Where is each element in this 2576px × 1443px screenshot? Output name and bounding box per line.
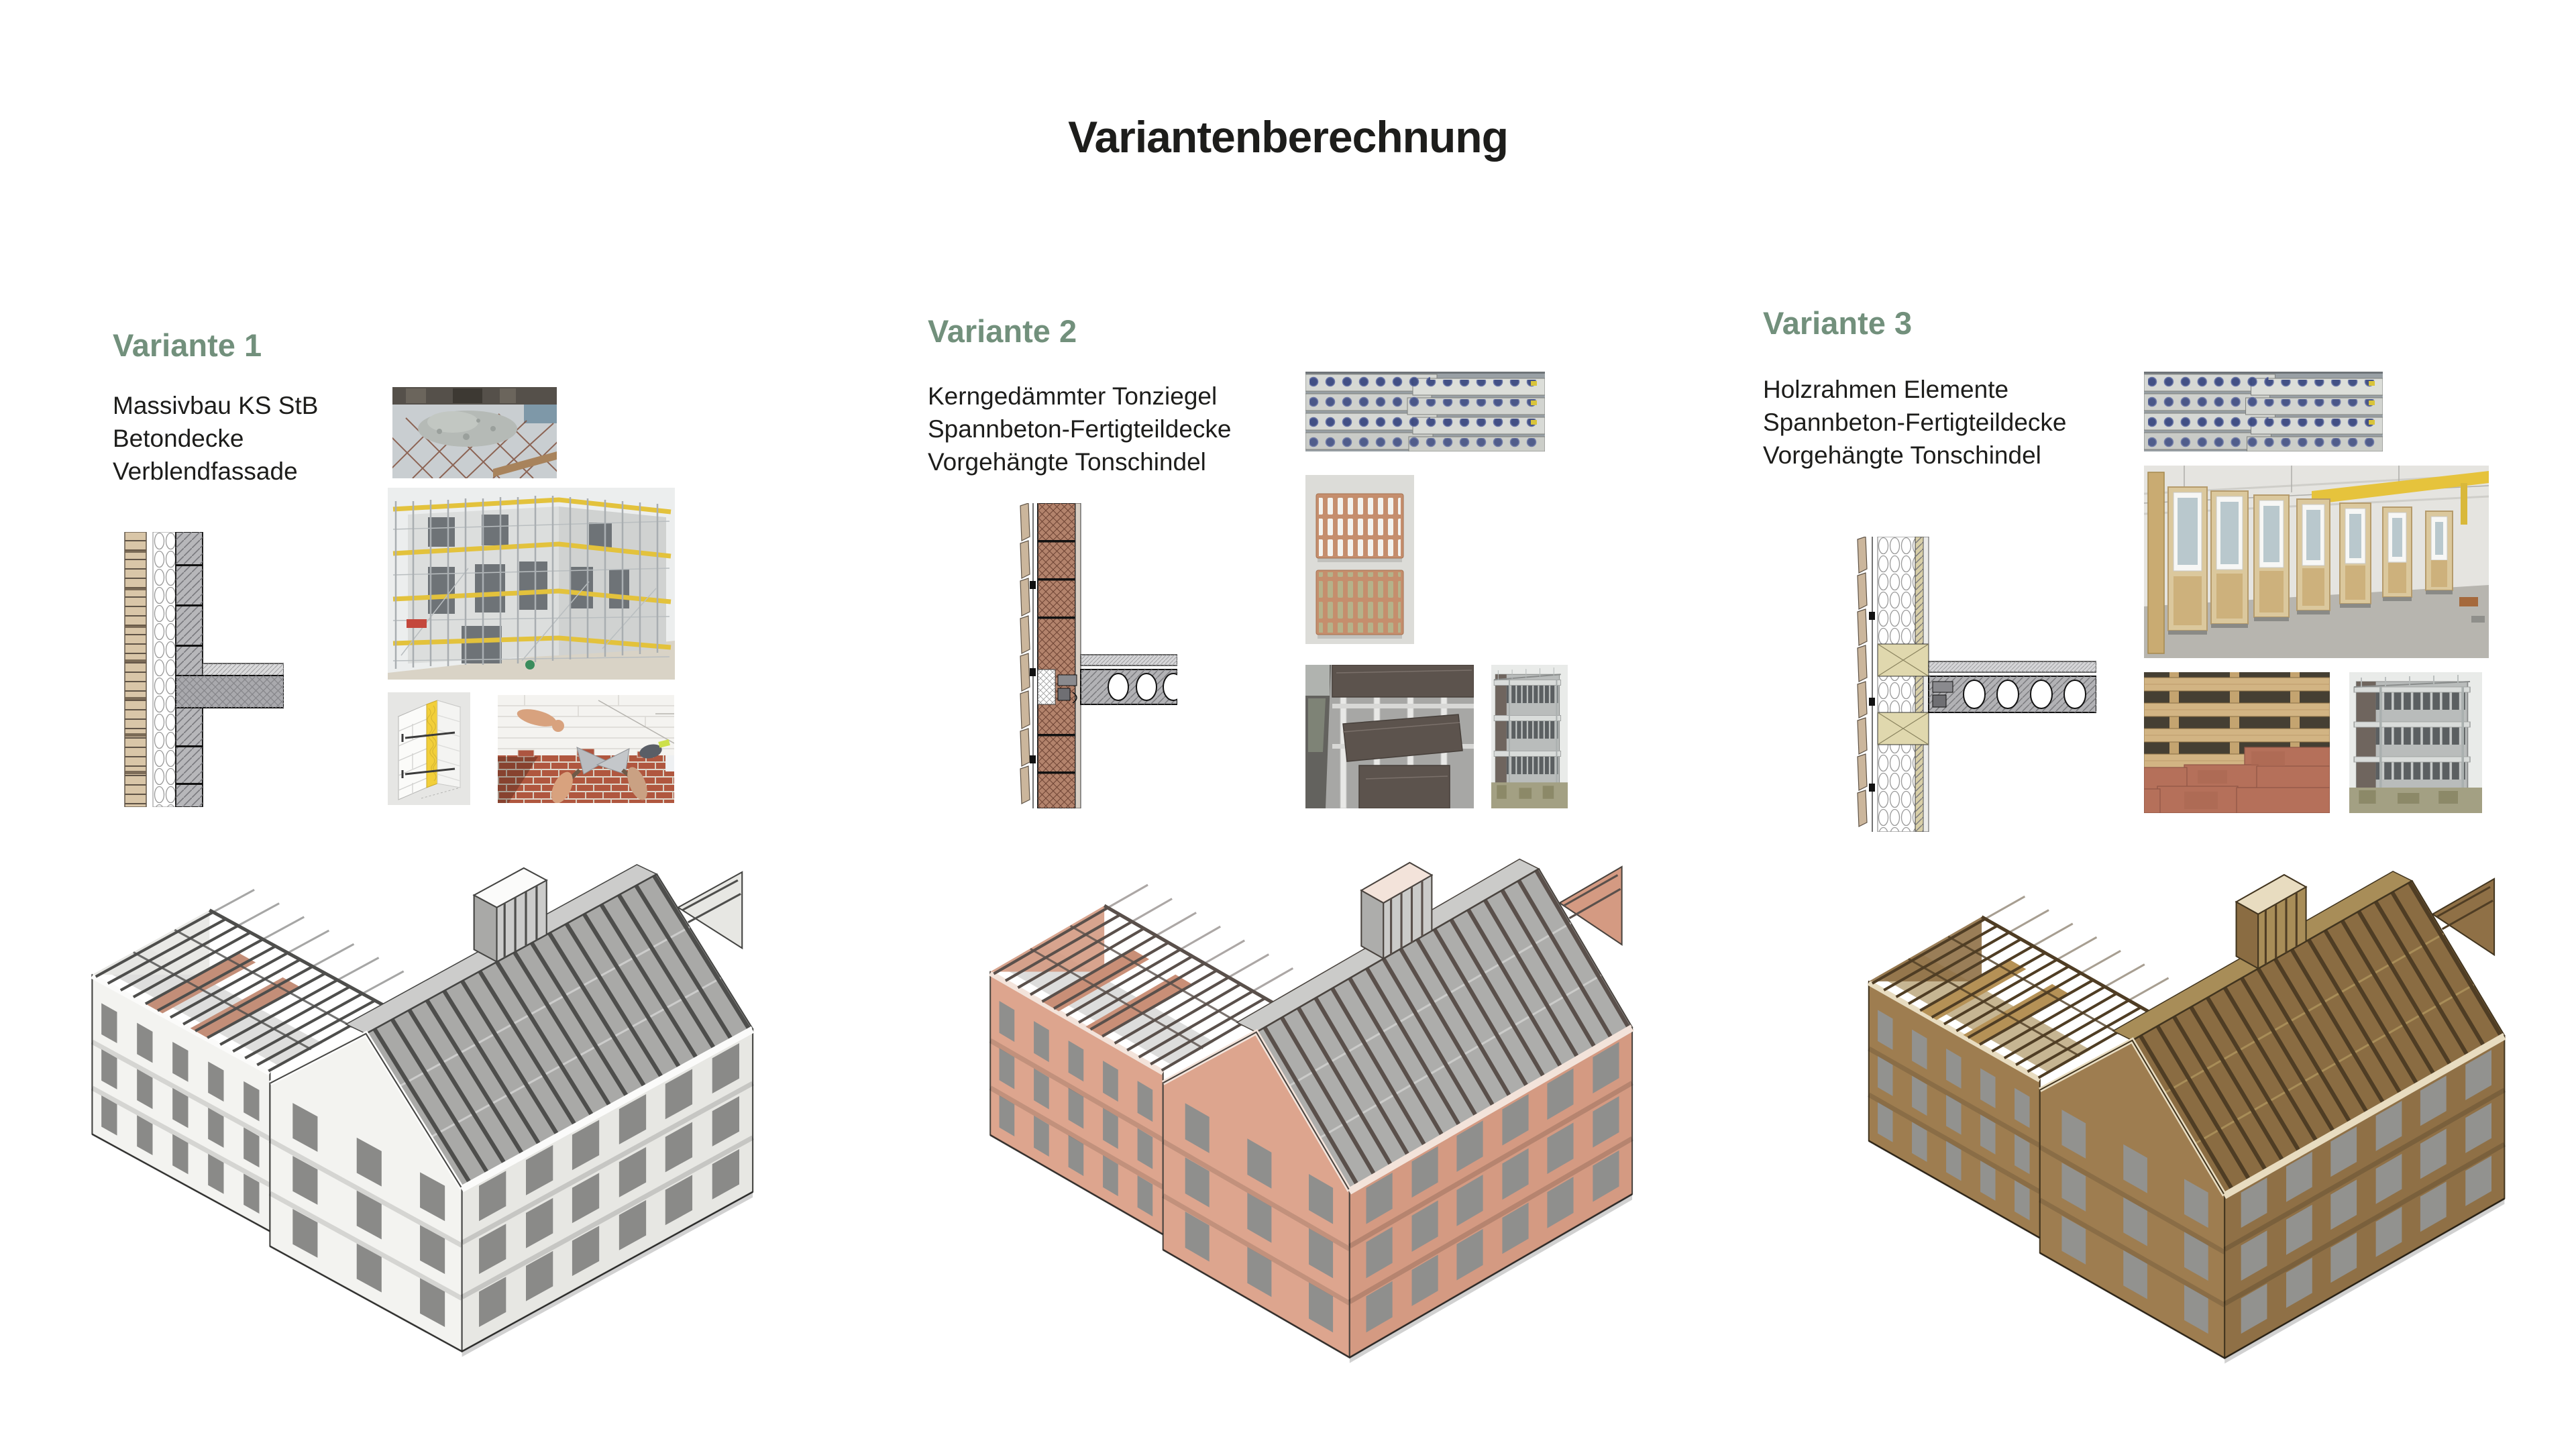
variant-1-desc-line-2: Betondecke — [113, 422, 318, 455]
wall-section-drawing-masonry — [119, 532, 284, 807]
balcony-facade-photo — [1491, 665, 1568, 808]
variant-2-description: Kerngedämmter Tonziegel Spannbeton-Ferti… — [928, 380, 1232, 478]
variant-1-description: Massivbau KS StB Betondecke Verblendfass… — [113, 389, 318, 488]
concrete-slab-pour-photo — [392, 387, 557, 478]
balcony-facade-photo — [2349, 672, 2482, 813]
variant-1-desc-line-3: Verblendfassade — [113, 455, 318, 488]
page-title: Variantenberechnung — [0, 111, 2576, 162]
hollow-core-slab-stack-photo — [1305, 372, 1545, 451]
variant-1-building-render — [64, 815, 775, 1379]
variant-3-heading: Variante 3 — [1763, 305, 1912, 341]
variant-2-heading: Variante 2 — [928, 313, 1077, 350]
cavity-wall-insulation-diagram — [388, 692, 470, 805]
clay-shingle-samples-photo — [1305, 475, 1414, 644]
variant-2-desc-line-1: Kerngedämmter Tonziegel — [928, 380, 1232, 413]
variant-3-building-render — [1841, 822, 2526, 1385]
variant-3-desc-line-2: Spannbeton-Fertigteildecke — [1763, 406, 2067, 439]
variant-3-desc-line-3: Vorgehängte Tonschindel — [1763, 439, 2067, 472]
shingle-facade-mockup-photo — [1305, 665, 1474, 808]
variant-1-desc-line-1: Massivbau KS StB — [113, 389, 318, 422]
wall-section-drawing-clay-block — [1016, 503, 1177, 808]
slide: Variantenberechnung — [0, 0, 2576, 1443]
variant-2-desc-line-3: Vorgehängte Tonschindel — [928, 445, 1232, 478]
hollow-core-slab-stack-photo — [2144, 372, 2383, 451]
wall-section-drawing-timber-frame — [1855, 537, 2096, 832]
shell-construction-scaffolding-photo — [388, 488, 675, 680]
variant-2-desc-line-2: Spannbeton-Fertigteildecke — [928, 413, 1232, 445]
timber-battens-clay-tiles-photo — [2144, 672, 2330, 813]
variant-2-building-render — [963, 808, 1654, 1385]
timber-frame-factory-photo — [2144, 466, 2489, 658]
variant-3-description: Holzrahmen Elemente Spannbeton-Fertigtei… — [1763, 373, 2067, 472]
variant-3-desc-line-1: Holzrahmen Elemente — [1763, 373, 2067, 406]
variant-1-heading: Variante 1 — [113, 327, 262, 364]
bricklaying-photo — [498, 695, 674, 803]
